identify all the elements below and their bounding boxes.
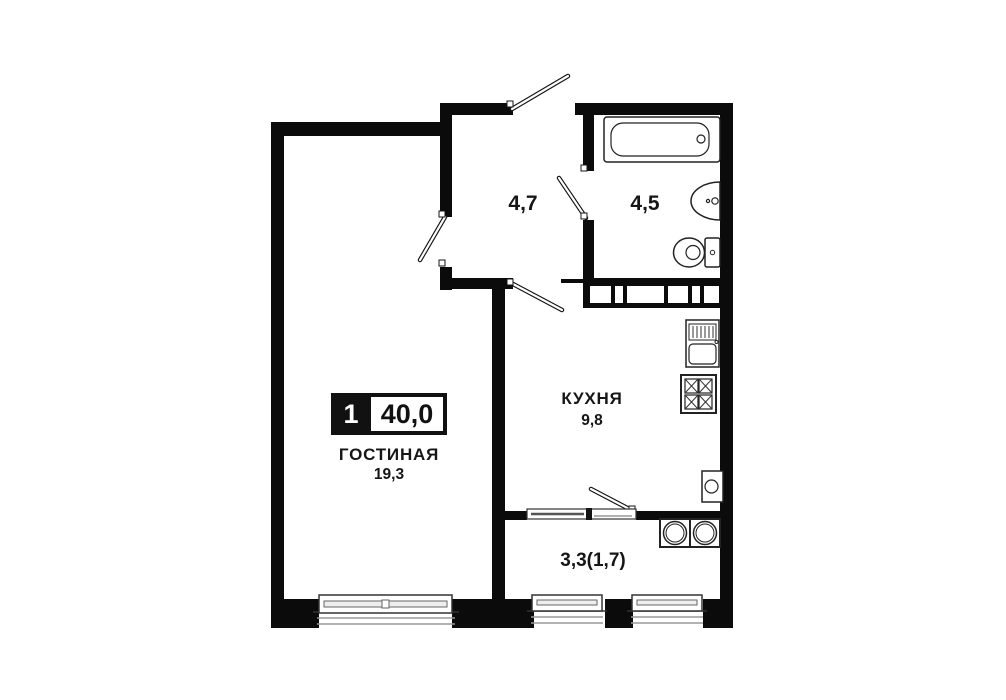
badge-total-area: 40,0 — [371, 397, 443, 431]
bathroom-area: 4,5 — [585, 192, 705, 215]
wall-bottom-4 — [703, 599, 733, 628]
wall-closet-link — [561, 279, 585, 283]
wall-bath-top — [575, 103, 733, 115]
hall-area: 4,7 — [463, 192, 583, 215]
balcony-window-right — [627, 595, 707, 623]
built-in-closet — [583, 278, 720, 308]
balcony-window-left — [527, 595, 607, 623]
kitchen-area: 9,8 — [502, 412, 682, 429]
washing-machine-icon — [702, 471, 723, 502]
wall-hall-bath-upper — [583, 114, 594, 171]
badge-rooms-count: 1 — [331, 393, 371, 435]
living-room-door — [420, 217, 445, 260]
wall-right — [720, 103, 733, 628]
living-room-label: ГОСТИНАЯ — [299, 446, 479, 465]
washer-dryer-icons — [660, 519, 720, 547]
wall-bottom-3 — [605, 599, 633, 628]
toilet-icon — [674, 238, 721, 267]
kitchen-sink-icon — [686, 320, 719, 367]
living-room-window — [313, 595, 459, 624]
wall-kitchen-balcony-left — [505, 511, 527, 520]
wall-left — [271, 122, 284, 628]
living-room-area: 19,3 — [299, 466, 479, 483]
bathtub-icon — [604, 117, 720, 162]
stove-icon — [681, 375, 716, 413]
wall-hall-top — [440, 103, 513, 115]
wall-living-top — [271, 122, 452, 136]
floor-plan-drawing — [0, 0, 1006, 700]
kitchen-door — [513, 284, 562, 310]
walls — [271, 103, 733, 628]
wall-bottom-1 — [271, 599, 319, 628]
area-badge: 1 40,0 — [331, 393, 447, 435]
wall-bottom-2 — [452, 599, 534, 628]
entrance-door — [512, 76, 568, 109]
balcony-area: 3,3(1,7) — [503, 551, 683, 572]
balcony-window-unit — [527, 508, 636, 520]
kitchen-label: КУХНЯ — [502, 390, 682, 409]
floor-plan: 1 40,0 ГОСТИНАЯ 19,3 КУХНЯ 9,8 4,7 4,5 3… — [0, 0, 1006, 700]
wall-hall-bath-lower — [583, 220, 594, 278]
wall-hall-living — [440, 103, 452, 217]
